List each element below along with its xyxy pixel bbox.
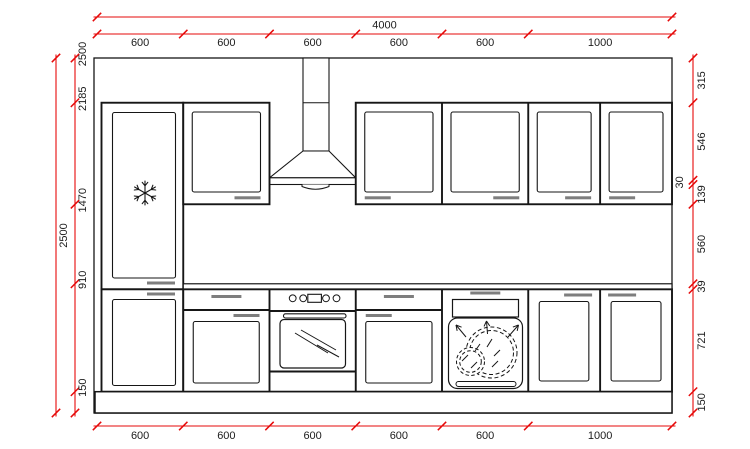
door-handle bbox=[147, 293, 175, 296]
wall-cabinet-1 bbox=[183, 103, 269, 205]
dim-left-marks: 250021851470910150 bbox=[71, 42, 89, 417]
dimension-label: 600 bbox=[217, 37, 235, 49]
plinth-board bbox=[95, 392, 672, 413]
dimension-label: 910 bbox=[77, 271, 89, 289]
dimension-label: 1000 bbox=[588, 430, 612, 442]
dim-top-total-label: 4000 bbox=[372, 20, 396, 32]
door-handle bbox=[608, 294, 636, 297]
door-handle bbox=[493, 196, 519, 199]
extractor-hood bbox=[270, 58, 356, 189]
dimension-label: 560 bbox=[696, 235, 708, 253]
door-handle bbox=[609, 196, 635, 199]
dimension-label: 600 bbox=[476, 430, 494, 442]
dimension-label: 150 bbox=[696, 393, 708, 411]
dimension-label: 30 bbox=[674, 176, 686, 188]
door-handle bbox=[234, 314, 260, 317]
elevation-svg: 4000600600600600600100060060060060060010… bbox=[0, 0, 750, 449]
dimension-label: 139 bbox=[696, 185, 708, 203]
dimension-label: 600 bbox=[390, 37, 408, 49]
dimension-label: 600 bbox=[131, 430, 149, 442]
dim-top-segments: 6006006006006001000 bbox=[93, 30, 676, 49]
dimension-label: 150 bbox=[77, 379, 89, 397]
wall-cabinets bbox=[183, 103, 672, 205]
dimension-label: 1000 bbox=[588, 37, 612, 49]
base-cabinets bbox=[183, 289, 672, 391]
wall-cabinet-block bbox=[356, 103, 672, 205]
hood-base bbox=[270, 178, 356, 185]
dimension-label: 600 bbox=[476, 37, 494, 49]
dimension-label: 600 bbox=[217, 430, 235, 442]
dim-left-total-label: 2500 bbox=[58, 223, 70, 247]
fridge-tall-unit bbox=[102, 103, 184, 290]
kitchen-elevation-drawing: 4000600600600600600100060060060060060010… bbox=[0, 0, 750, 449]
dim-right-segments: 3155463013956039721150 bbox=[674, 54, 708, 417]
dimension-label: 721 bbox=[696, 331, 708, 349]
plinth bbox=[95, 392, 672, 413]
dimension-label: 315 bbox=[696, 71, 708, 89]
dimension-label: 39 bbox=[696, 280, 708, 292]
dimension-label: 2185 bbox=[77, 86, 89, 110]
dim-bottom-segments: 6006006006006001000 bbox=[93, 422, 676, 442]
dimension-label: 2500 bbox=[77, 42, 89, 66]
door-handle bbox=[365, 196, 391, 199]
door-handle bbox=[366, 314, 392, 317]
base-run bbox=[183, 289, 672, 391]
door-handle bbox=[235, 196, 261, 199]
hood-vent bbox=[302, 185, 329, 190]
door-handle bbox=[470, 292, 500, 295]
drawer-handle bbox=[384, 295, 414, 298]
dimension-label: 546 bbox=[696, 132, 708, 150]
dimension-label: 600 bbox=[303, 430, 321, 442]
dim-left-total: 2500 bbox=[52, 54, 70, 417]
dimension-label: 600 bbox=[390, 430, 408, 442]
fridge-base-unit bbox=[102, 289, 184, 391]
hood-flare bbox=[270, 151, 356, 178]
dim-top-total: 4000 bbox=[93, 13, 676, 32]
door-handle bbox=[564, 294, 592, 297]
hood-chimney bbox=[303, 58, 329, 151]
dimension-label: 1470 bbox=[77, 188, 89, 212]
drawer-handle bbox=[211, 295, 241, 298]
dimension-label: 600 bbox=[303, 37, 321, 49]
door-handle bbox=[565, 196, 591, 199]
dimension-label: 600 bbox=[131, 37, 149, 49]
fridge-door-handle bbox=[147, 282, 175, 285]
